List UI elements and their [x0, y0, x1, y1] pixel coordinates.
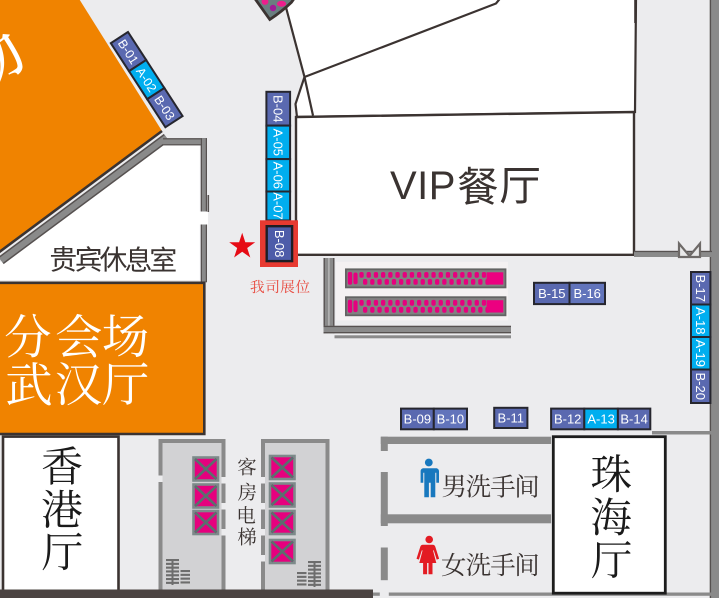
svg-text:B-14: B-14	[620, 412, 647, 427]
svg-text:A-18: A-18	[693, 307, 708, 334]
svg-text:B-08: B-08	[272, 230, 287, 257]
svg-text:B-15: B-15	[538, 286, 565, 301]
svg-text:B-20: B-20	[693, 372, 708, 399]
svg-text:B-17: B-17	[693, 274, 708, 301]
svg-text:B-10: B-10	[437, 412, 464, 427]
svg-text:A-06: A-06	[271, 162, 286, 189]
svg-text:B-12: B-12	[554, 412, 581, 427]
svg-text:A-13: A-13	[587, 412, 614, 427]
svg-text:B-16: B-16	[573, 286, 600, 301]
svg-text:A-19: A-19	[693, 339, 708, 366]
svg-text:A-05: A-05	[271, 129, 286, 156]
svg-text:A-07: A-07	[271, 192, 286, 219]
svg-text:B-11: B-11	[498, 411, 525, 426]
svg-text:VIP: VIP	[390, 164, 456, 208]
svg-text:B-09: B-09	[404, 412, 431, 427]
svg-text:B-04: B-04	[271, 95, 286, 122]
